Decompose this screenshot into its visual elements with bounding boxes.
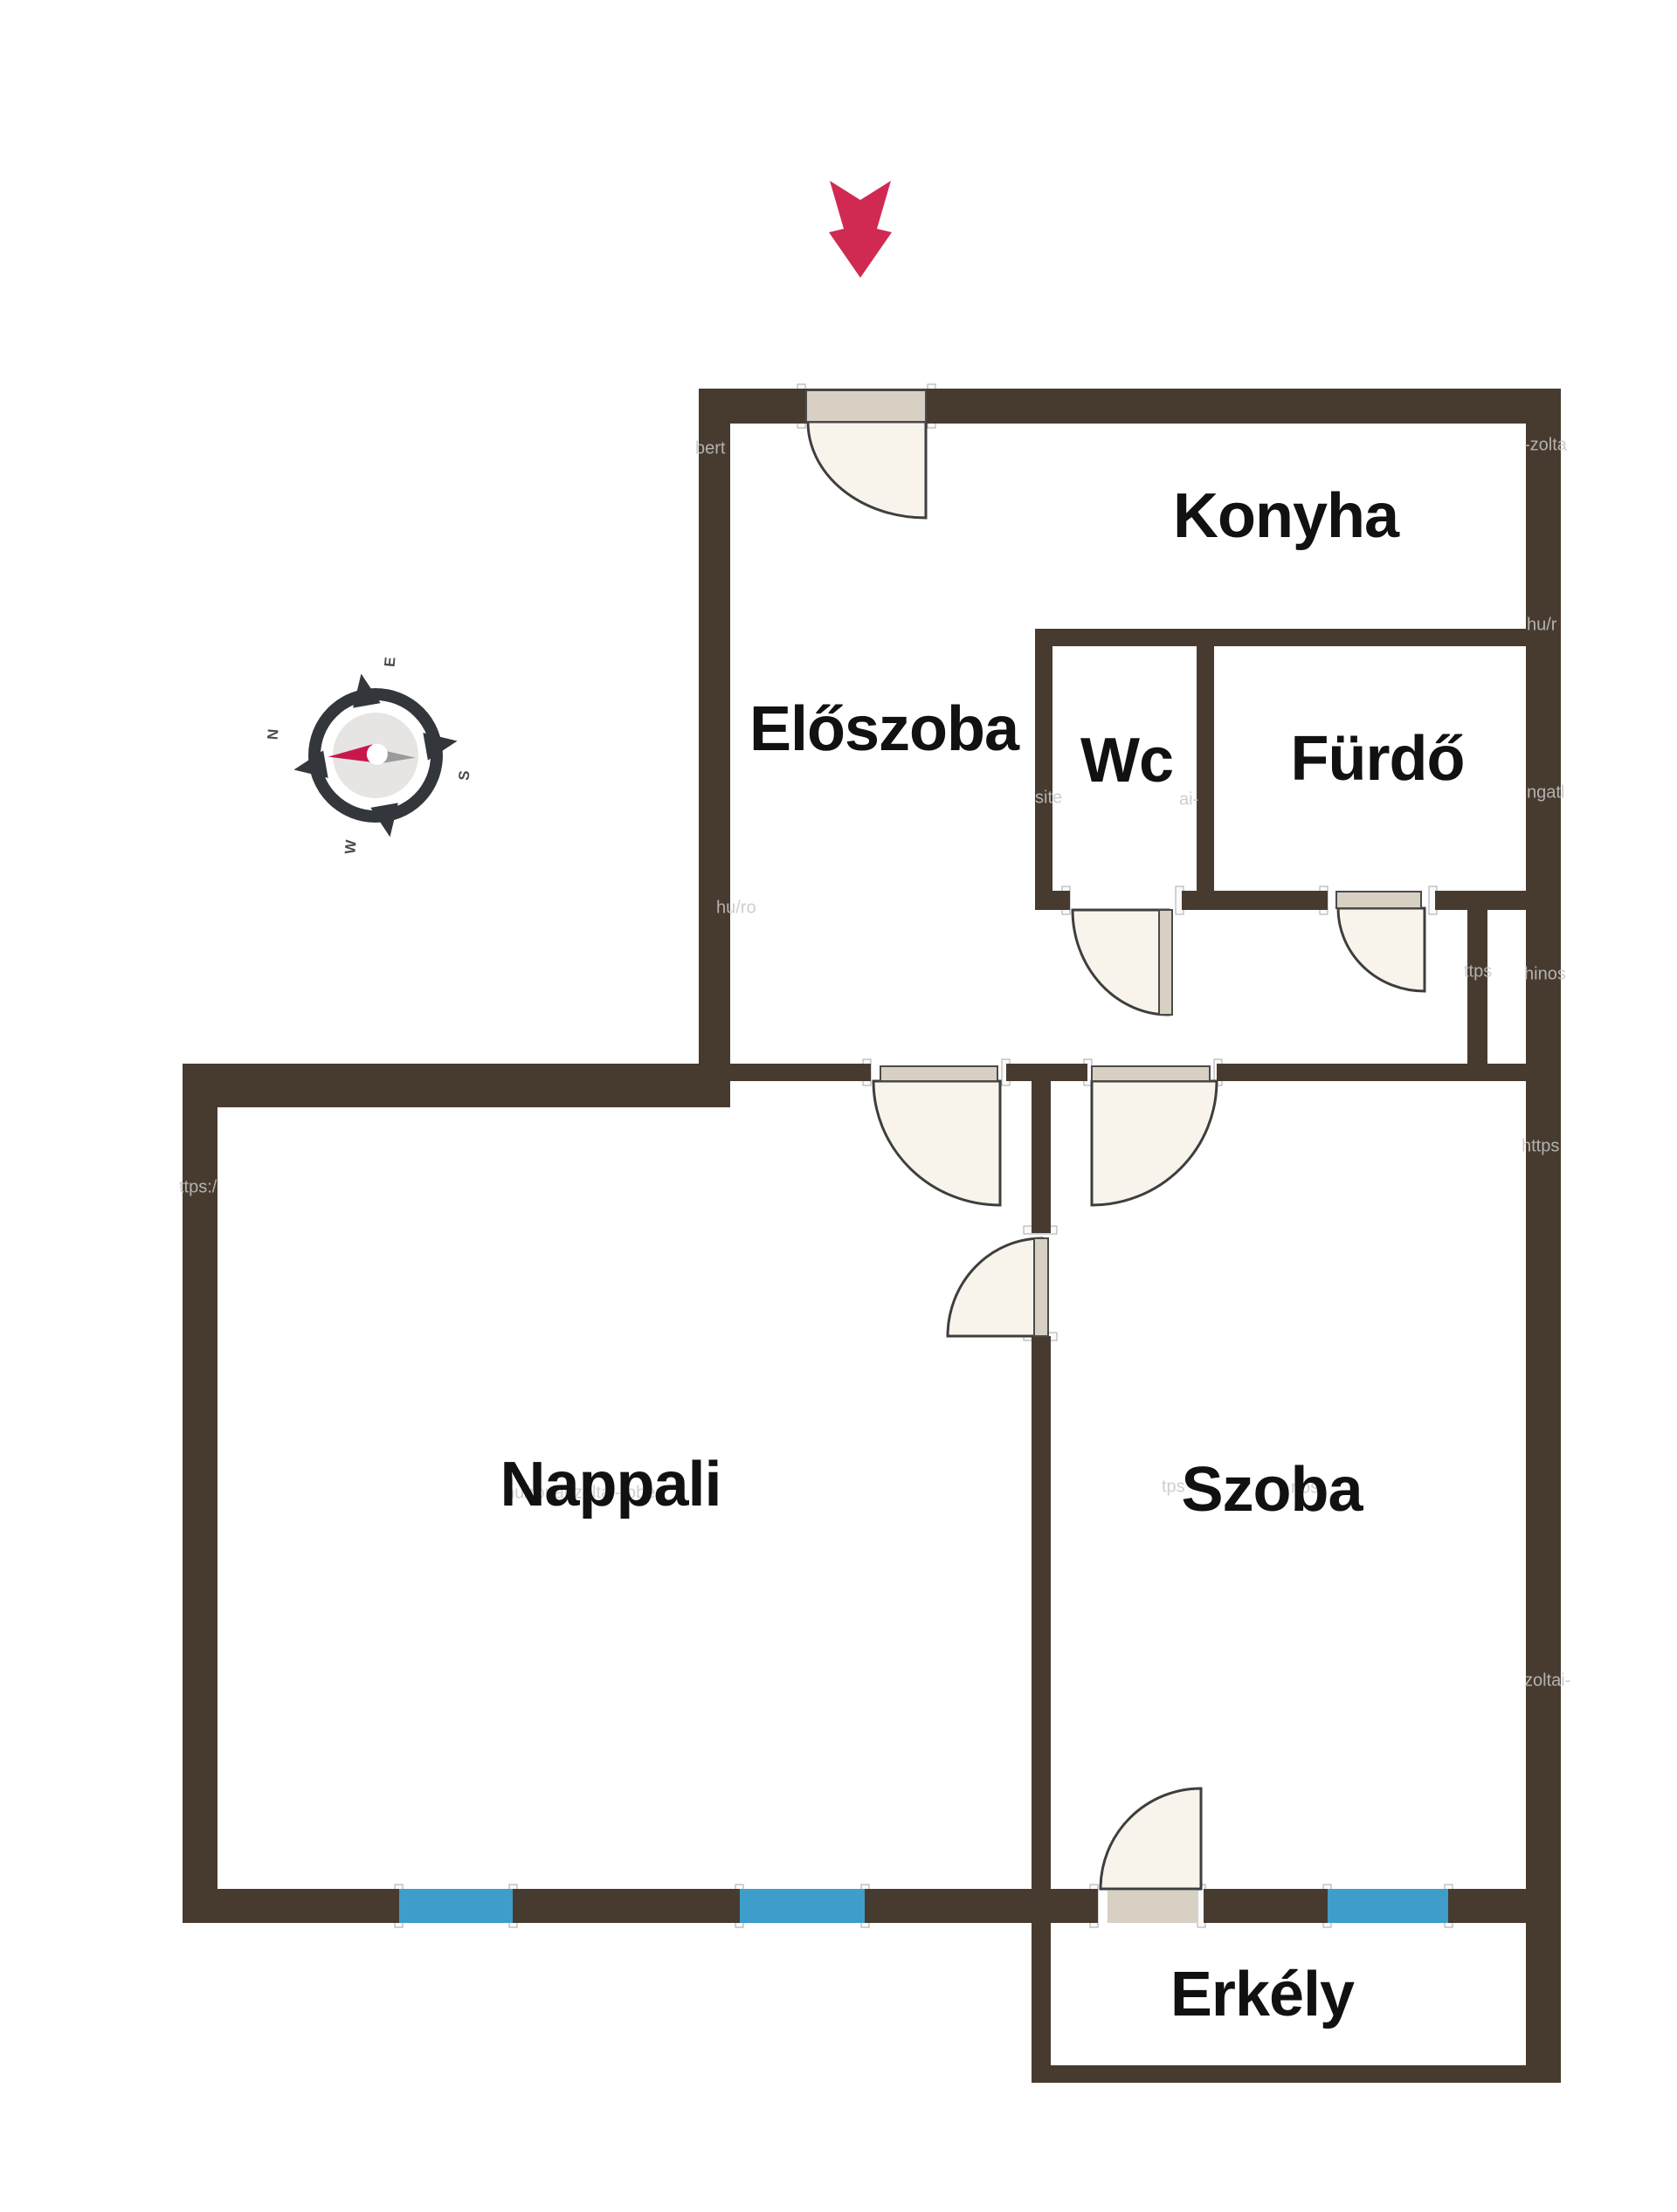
nappali-door-leaf bbox=[880, 1066, 997, 1081]
entrance-arrow-icon bbox=[829, 181, 892, 278]
room-label-wc: Wc bbox=[1080, 725, 1173, 796]
watermark-text: zoltai- bbox=[1524, 1671, 1570, 1692]
watermark-text: ngatl bbox=[1527, 783, 1564, 803]
room-label-erkely: Erkély bbox=[1170, 1959, 1354, 2030]
compass-label-e: E bbox=[382, 656, 400, 667]
divider-door-arc bbox=[948, 1238, 1042, 1336]
floor-plan-page: { "title": "Apartment floor plan", "room… bbox=[0, 0, 1677, 2212]
window-szoba bbox=[1328, 1889, 1448, 1923]
room-label-eloszoba: Előszoba bbox=[749, 693, 1018, 765]
watermark-text: hu/ro bbox=[716, 899, 756, 919]
compass-label-w: W bbox=[342, 839, 360, 855]
entrance-door-leaf bbox=[806, 390, 926, 422]
divider-door-leaf bbox=[1034, 1238, 1048, 1336]
furdo-door-leaf bbox=[1336, 892, 1421, 908]
watermark-text: bert bbox=[695, 439, 725, 459]
room-label-furdo: Fürdő bbox=[1291, 723, 1465, 795]
window-nappali-1 bbox=[399, 1889, 513, 1923]
walls bbox=[183, 389, 1561, 2083]
doors bbox=[806, 390, 1425, 1923]
szoba-door-leaf bbox=[1092, 1066, 1210, 1081]
watermark-text: site bbox=[1035, 789, 1062, 809]
furdo-door-arc bbox=[1338, 908, 1425, 991]
window-nappali-2 bbox=[740, 1889, 865, 1923]
watermark-text: hinos bbox=[1524, 965, 1566, 985]
room-label-nappali: Nappali bbox=[500, 1449, 721, 1520]
watermark-text: https bbox=[1522, 1137, 1559, 1157]
watermark-text: ttps:/ bbox=[179, 1178, 217, 1198]
room-label-konyha: Konyha bbox=[1173, 480, 1398, 552]
watermark-text: ai- bbox=[1179, 790, 1198, 810]
floor-plan-drawing bbox=[0, 0, 1677, 2212]
compass-icon bbox=[279, 659, 472, 851]
watermark-text: ttps bbox=[1464, 962, 1492, 982]
szoba-door-arc bbox=[1092, 1081, 1217, 1205]
balcony-door-threshold bbox=[1108, 1891, 1197, 1923]
balcony-door-arc bbox=[1101, 1788, 1201, 1889]
entrance-door-arc bbox=[808, 422, 926, 518]
compass-label-n: N bbox=[265, 728, 283, 741]
nappali-door-arc bbox=[873, 1081, 1000, 1205]
watermark-text: hu/r bbox=[1527, 616, 1556, 636]
room-label-szoba: Szoba bbox=[1181, 1454, 1362, 1526]
watermark-text: -zolta bbox=[1524, 436, 1567, 456]
wc-door-arc bbox=[1073, 910, 1169, 1015]
compass-label-s: S bbox=[456, 769, 474, 781]
wc-door-leaf bbox=[1159, 910, 1172, 1015]
